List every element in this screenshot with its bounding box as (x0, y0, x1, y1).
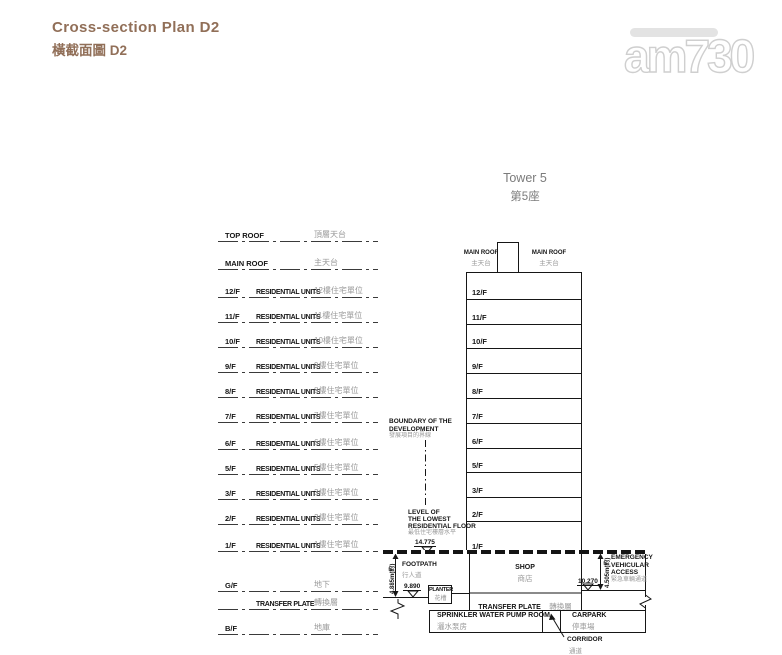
corridor-zh: 通道 (569, 645, 582, 655)
tower-floor-label: 10/F (472, 337, 487, 346)
lowest-level-en3: RESIDENTIAL FLOOR (408, 523, 476, 530)
sprinkler-room-zh: 灑水泵房 (437, 621, 467, 632)
level-value-14775: 14.775 (414, 539, 436, 546)
lowest-level-zh: 最低住宅樓層水平 (408, 530, 476, 537)
eva-zh: 緊急車輛通道 (611, 577, 653, 585)
right-dimension-text: 4.505m(約) (602, 558, 611, 588)
main-roof-left-en: MAIN ROOF (459, 250, 503, 256)
level-value-9890-text: 9.890 (403, 583, 421, 591)
level-value-10270-text: 10.270 (577, 578, 599, 586)
lowest-level-label: LEVEL OF THE LOWEST RESIDENTIAL FLOOR 最低… (408, 509, 476, 537)
carpark-en: CARPARK (572, 612, 606, 619)
tower-floor-label: 12/F (472, 288, 487, 297)
ground-hatched-line (383, 550, 648, 554)
level-value-10270: 10.270 (577, 578, 599, 585)
footpath-zh: 行人道 (402, 569, 422, 579)
main-roof-label-left: MAIN ROOF 主天台 (459, 250, 503, 267)
planter-zh: 花槽 (429, 593, 452, 602)
boundary-en1: BOUNDARY OF THE (389, 418, 452, 426)
shop-en: SHOP (495, 564, 555, 571)
carpark-zh: 停車場 (572, 621, 595, 632)
boundary-zh: 發展項目的界線 (389, 433, 452, 441)
main-roof-label-right: MAIN ROOF 主天台 (527, 250, 571, 267)
main-roof-right-zh: 主天台 (527, 257, 571, 267)
tower-floor-label: 6/F (472, 437, 483, 446)
boundary-en2: DEVELOPMENT (389, 426, 452, 434)
eva-en2: VEHICULAR (611, 562, 653, 570)
planter-label: PLANTER 花槽 (429, 587, 452, 602)
footpath-en: FOOTPATH (402, 561, 437, 568)
lowest-level-en1: LEVEL OF (408, 509, 476, 516)
level-value-9890: 9.890 (403, 583, 421, 590)
corridor-en: CORRIDOR (567, 636, 602, 643)
eva-en3: ACCESS (611, 569, 653, 577)
tower-floor-label: 5/F (472, 461, 483, 470)
tower-floor-label: 3/F (472, 486, 483, 495)
main-roof-right-en: MAIN ROOF (527, 250, 571, 256)
cross-section-diagram-page: Cross-section Plan D2 橫截面圖 D2 am730 Towe… (0, 0, 782, 655)
lowest-level-en2: THE LOWEST (408, 516, 476, 523)
tower-floor-label: 8/F (472, 387, 483, 396)
sprinkler-room-en: SPRINKLER WATER PUMP ROOM (437, 612, 550, 619)
main-roof-left-zh: 主天台 (459, 257, 503, 267)
tower-floor-label: 7/F (472, 412, 483, 421)
eva-en1: EMERGENCY (611, 554, 653, 562)
left-dimension-text: 4.885m(約) (387, 564, 396, 594)
level-value-14775-text: 14.775 (414, 539, 436, 547)
transfer-plate-zh: 轉換層 (545, 602, 572, 611)
transfer-plate-en: TRANSFER PLATE (478, 604, 540, 611)
tower-floor-label: 1/F (472, 542, 483, 551)
tower-floor-label: 9/F (472, 362, 483, 371)
eva-label: EMERGENCY VEHICULAR ACCESS 緊急車輛通道 (611, 554, 653, 584)
boundary-label: BOUNDARY OF THE DEVELOPMENT 發展項目的界線 (389, 418, 452, 441)
section-line-drawing (0, 0, 782, 655)
tower-floor-label: 11/F (472, 313, 487, 322)
shop-zh: 商店 (495, 573, 555, 584)
